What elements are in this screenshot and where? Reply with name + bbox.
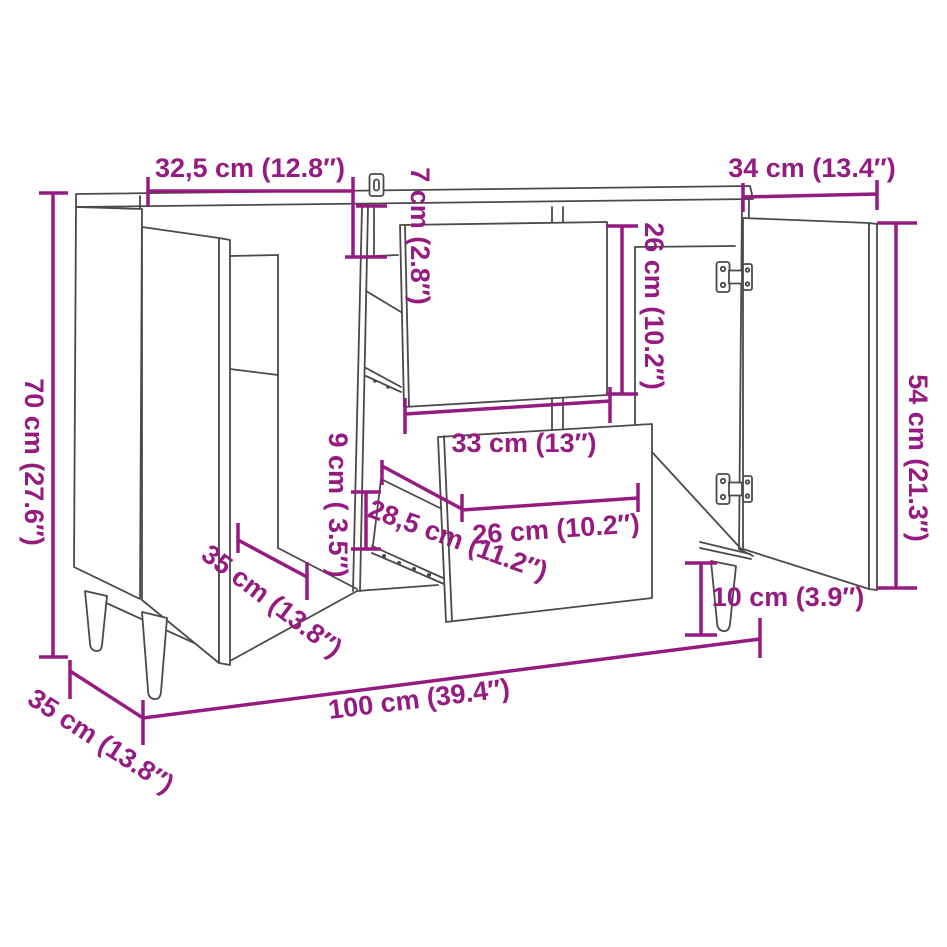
dim-label-top-rail-height: 7 cm (2.8″) xyxy=(405,167,435,305)
right-door-face xyxy=(743,218,869,589)
dim-line-drawer-front-height xyxy=(606,226,638,394)
sideboard-dimension-diagram: 32,5 cm (12.8″) 7 cm (2.8″) 34 cm (13.4″… xyxy=(0,0,947,947)
dim-label-right-door-height: 54 cm (21.3″) xyxy=(903,374,933,542)
hinge-bottom-icon xyxy=(717,474,753,504)
left-side-panel xyxy=(74,207,142,599)
hinge-top-icon xyxy=(717,262,753,292)
dim-label-drawer-front-height: 26 cm (10.2″) xyxy=(639,222,669,390)
dim-label-total-depth: 35 cm (13.8″) xyxy=(23,683,180,799)
leg-front-left xyxy=(142,612,167,699)
dim-label-bottom-gap-height: 9 cm ( 3.5″) xyxy=(323,433,353,578)
bottom-drawer-slide-rail xyxy=(372,546,443,578)
left-door-open xyxy=(142,227,230,665)
dim-label-right-door-width: 34 cm (13.4″) xyxy=(728,153,896,183)
leg-back-left xyxy=(85,591,107,651)
shelf-edge xyxy=(230,369,278,375)
dim-label-leg-height: 10 cm (3.9″) xyxy=(712,582,865,612)
right-door-open xyxy=(743,218,877,590)
left-door-face xyxy=(142,227,219,663)
right-door-thickness xyxy=(869,223,877,590)
dim-label-left-door-width: 32,5 cm (12.8″) xyxy=(155,153,345,183)
diagram-canvas: 32,5 cm (12.8″) 7 cm (2.8″) 34 cm (13.4″… xyxy=(0,0,947,947)
center-partition xyxy=(353,207,398,591)
dim-label-drawer-width: 33 cm (13″) xyxy=(451,428,596,458)
wall-mount-bracket xyxy=(370,174,384,196)
dim-label-total-width: 100 cm (39.4″) xyxy=(327,673,512,725)
top-drawer-open xyxy=(366,222,607,407)
left-door-thickness xyxy=(219,238,230,665)
dim-line-right-door-width xyxy=(743,180,877,212)
dim-label-total-height: 70 cm (27.6″) xyxy=(19,378,49,546)
